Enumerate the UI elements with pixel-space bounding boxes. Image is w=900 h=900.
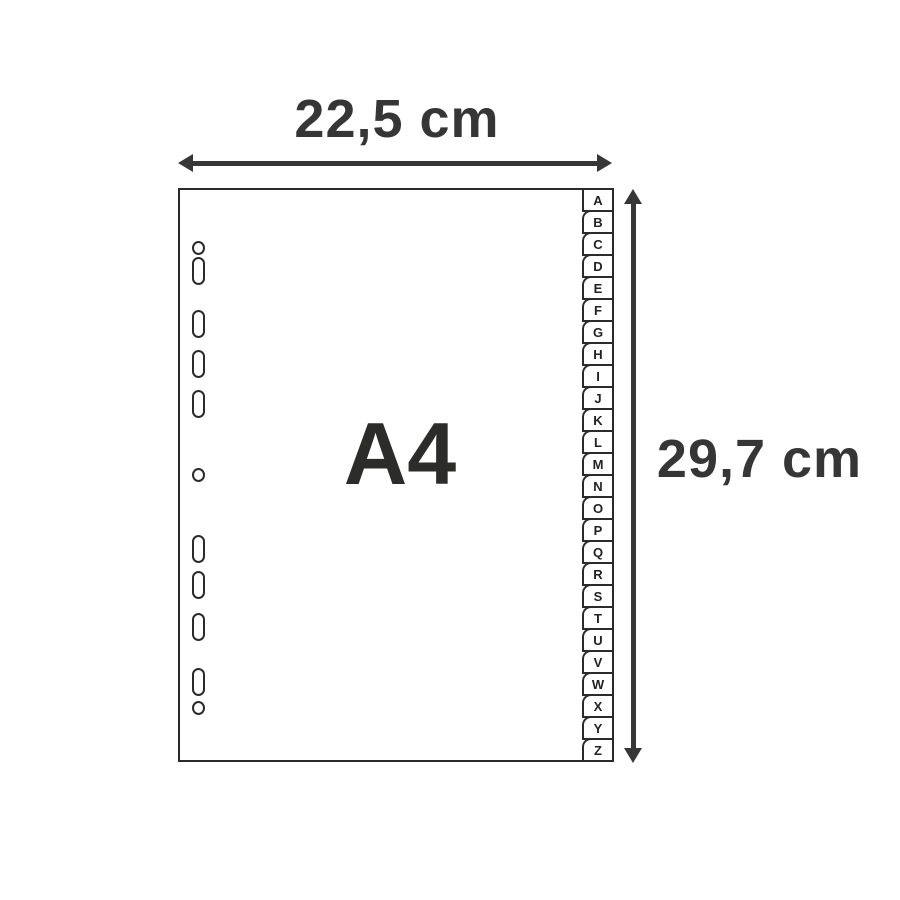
arrow-line: [631, 199, 636, 753]
index-tab-q: Q: [582, 540, 614, 564]
punch-hole-round: [192, 241, 205, 255]
index-tab-f: F: [582, 298, 614, 322]
index-tab-v: V: [582, 650, 614, 674]
index-tab-p: P: [582, 518, 614, 542]
punch-hole-oblong: [192, 668, 205, 696]
index-tab-a: A: [582, 188, 614, 212]
arrow-down-icon: [624, 748, 642, 763]
punch-hole-round: [192, 468, 205, 482]
punch-hole-oblong: [192, 310, 205, 338]
index-tab-l: L: [582, 430, 614, 454]
index-tab-x: X: [582, 694, 614, 718]
index-tab-e: E: [582, 276, 614, 300]
index-tab-w: W: [582, 672, 614, 696]
height-dimension-label: 29,7 cm: [652, 432, 867, 486]
width-dimension-arrow: [178, 154, 612, 172]
index-tab-j: J: [582, 386, 614, 410]
index-tab-m: M: [582, 452, 614, 476]
punch-hole-oblong: [192, 390, 205, 418]
punch-hole-oblong: [192, 571, 205, 599]
index-tab-d: D: [582, 254, 614, 278]
punch-hole-round: [192, 701, 205, 715]
index-tab-b: B: [582, 210, 614, 234]
index-tab-o: O: [582, 496, 614, 520]
height-dimension-arrow: [624, 189, 642, 763]
punch-hole-oblong: [192, 350, 205, 378]
arrow-right-icon: [597, 154, 612, 172]
punch-hole-oblong: [192, 257, 205, 285]
index-tab-u: U: [582, 628, 614, 652]
index-tab-t: T: [582, 606, 614, 630]
index-tab-n: N: [582, 474, 614, 498]
sheet-size-label: A4: [230, 410, 570, 498]
arrow-line: [188, 161, 602, 166]
index-tab-column: ABCDEFGHIJKLMNOPQRSTUVWXYZ: [582, 188, 614, 762]
punch-hole-oblong: [192, 613, 205, 641]
index-tab-g: G: [582, 320, 614, 344]
index-tab-k: K: [582, 408, 614, 432]
divider-sheet: A4 ABCDEFGHIJKLMNOPQRSTUVWXYZ: [178, 188, 614, 762]
index-tab-s: S: [582, 584, 614, 608]
index-tab-c: C: [582, 232, 614, 256]
index-tab-y: Y: [582, 716, 614, 740]
index-tab-h: H: [582, 342, 614, 366]
index-tab-r: R: [582, 562, 614, 586]
index-tab-i: I: [582, 364, 614, 388]
index-tab-z: Z: [582, 738, 614, 762]
punch-hole-oblong: [192, 535, 205, 563]
width-dimension-label: 22,5 cm: [178, 92, 616, 146]
